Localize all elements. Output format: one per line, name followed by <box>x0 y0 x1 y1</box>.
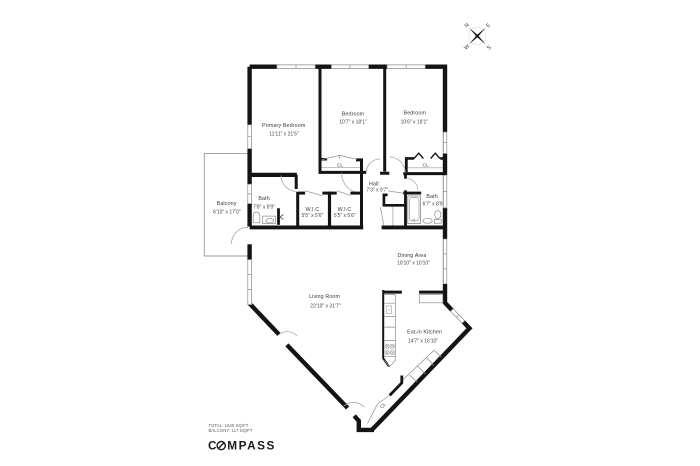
svg-text:BALCONY: 117 SQ/FT: BALCONY: 117 SQ/FT <box>209 428 253 433</box>
svg-text:22'10" x 31'7": 22'10" x 31'7" <box>310 304 340 310</box>
svg-text:MPASS: MPASS <box>227 439 276 453</box>
svg-text:Living Room: Living Room <box>309 294 340 300</box>
svg-text:6'10" x 17'0": 6'10" x 17'0" <box>213 210 241 216</box>
svg-text:5'5" x 5'6": 5'5" x 5'6" <box>334 213 356 219</box>
svg-text:11'11" x 21'5": 11'11" x 21'5" <box>269 131 299 137</box>
svg-text:7'3" x 9'7": 7'3" x 9'7" <box>366 188 388 194</box>
svg-text:Eat-in Kitchen: Eat-in Kitchen <box>407 330 442 336</box>
svg-text:10'6" x 18'1": 10'6" x 18'1" <box>401 120 429 126</box>
svg-text:Bedroom: Bedroom <box>342 111 365 117</box>
svg-text:Bath: Bath <box>258 196 270 202</box>
svg-text:10'7" x 18'1": 10'7" x 18'1" <box>339 120 367 126</box>
svg-text:7'8" x 8'9": 7'8" x 8'9" <box>253 204 275 210</box>
svg-text:CL: CL <box>337 162 343 168</box>
svg-text:CL: CL <box>423 162 429 168</box>
svg-text:Bedroom: Bedroom <box>404 111 427 117</box>
svg-text:Balcony: Balcony <box>217 201 237 207</box>
svg-text:5'5" x 5'6": 5'5" x 5'6" <box>301 213 323 219</box>
svg-text:Primary Bedroom: Primary Bedroom <box>262 123 306 129</box>
svg-text:6'7" x 8'9: 6'7" x 8'9 <box>422 201 442 207</box>
svg-text:TOTAL: 1840 SQ/FT: TOTAL: 1840 SQ/FT <box>209 423 249 428</box>
svg-text:Dining Area: Dining Area <box>398 253 427 259</box>
svg-text:Bath: Bath <box>426 194 438 200</box>
svg-text:10'10" x 10'10": 10'10" x 10'10" <box>397 261 430 267</box>
svg-text:14'7" x 16'10": 14'7" x 16'10" <box>408 339 438 345</box>
